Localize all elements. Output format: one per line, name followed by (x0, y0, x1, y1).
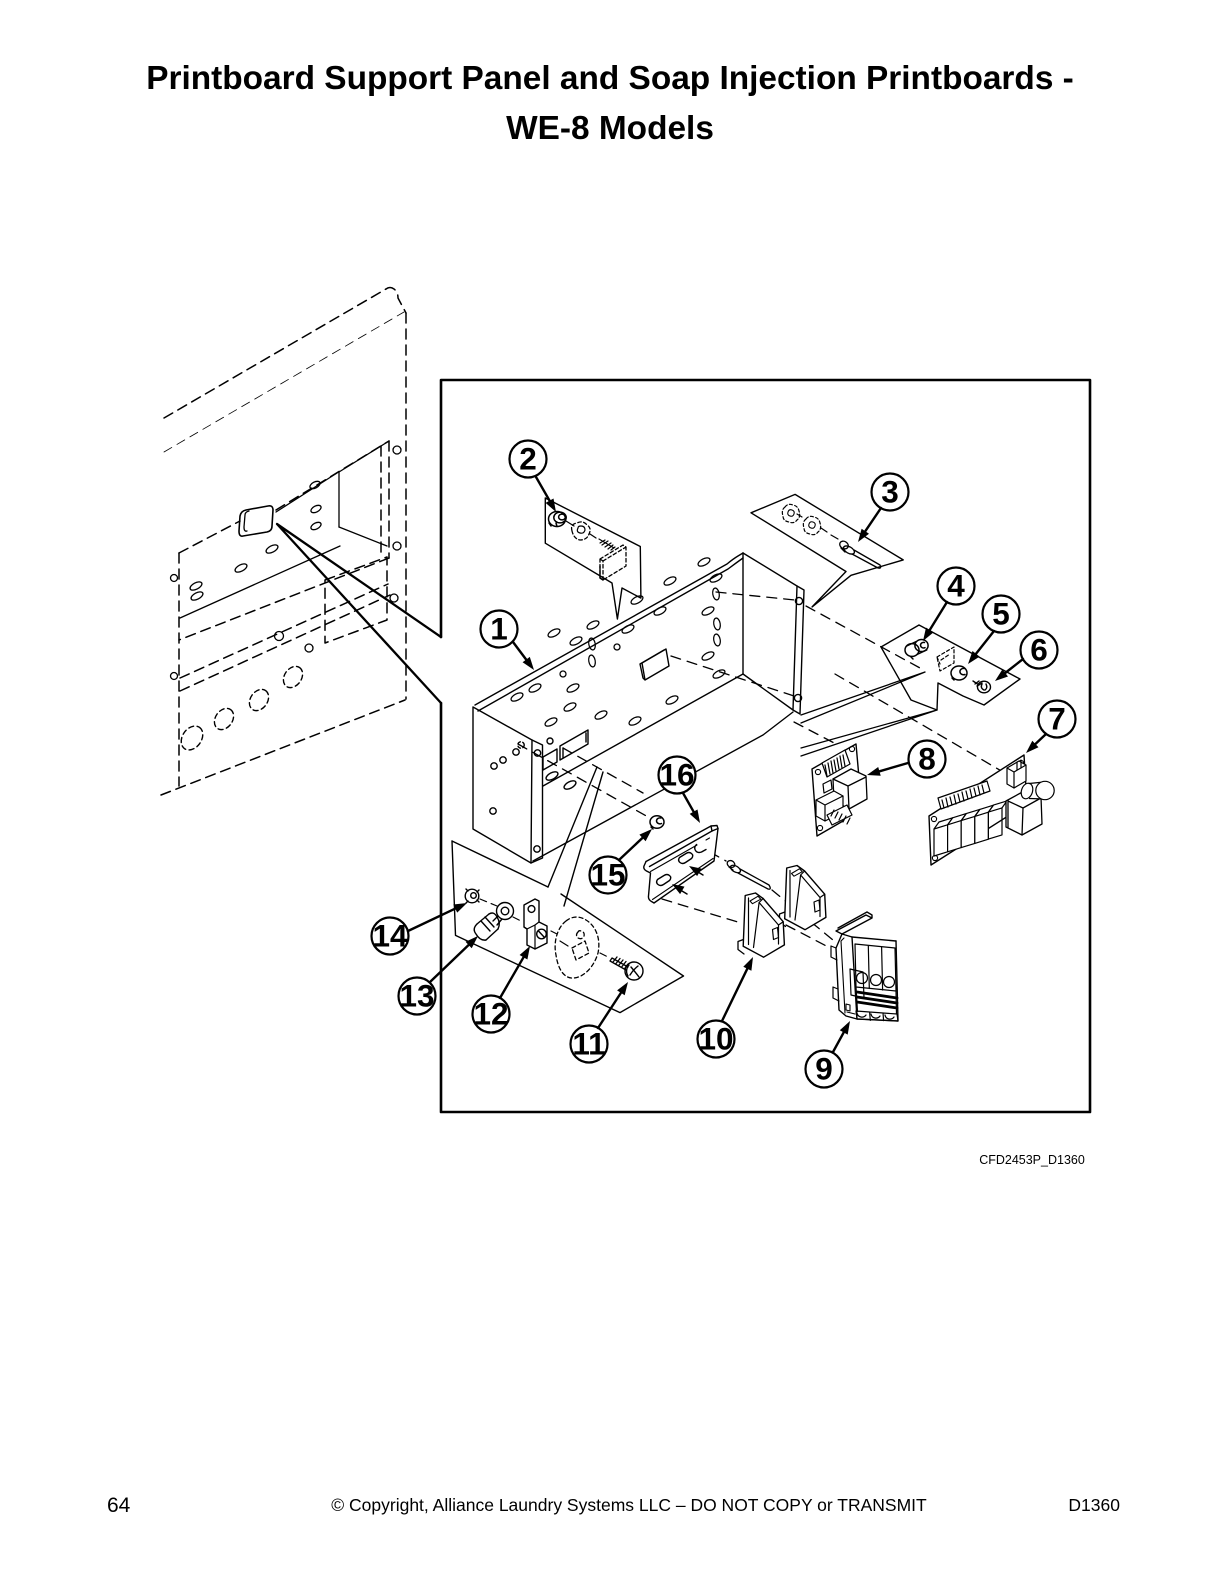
svg-text:1: 1 (490, 611, 508, 647)
svg-text:CFD2453P_D1360: CFD2453P_D1360 (979, 1153, 1085, 1167)
svg-text:8: 8 (918, 741, 936, 777)
svg-text:4: 4 (947, 568, 965, 604)
svg-text:7: 7 (1048, 701, 1066, 737)
svg-text:2: 2 (519, 441, 537, 477)
svg-text:15: 15 (590, 857, 625, 893)
svg-text:D1360: D1360 (1068, 1495, 1120, 1515)
svg-text:11: 11 (572, 1026, 605, 1062)
svg-text:WE-8 Models: WE-8 Models (506, 110, 714, 147)
svg-text:9: 9 (815, 1051, 833, 1087)
svg-text:64: 64 (107, 1494, 131, 1517)
svg-text:14: 14 (372, 918, 408, 954)
svg-text:© Copyright, Alliance Laundry: © Copyright, Alliance Laundry Systems LL… (331, 1495, 927, 1515)
svg-text:10: 10 (698, 1021, 733, 1057)
svg-text:16: 16 (659, 757, 694, 793)
svg-text:6: 6 (1030, 632, 1048, 668)
svg-text:5: 5 (992, 596, 1010, 632)
svg-text:12: 12 (473, 996, 508, 1032)
svg-text:Printboard Support Panel and S: Printboard Support Panel and Soap Inject… (146, 60, 1074, 97)
svg-text:3: 3 (881, 474, 899, 510)
